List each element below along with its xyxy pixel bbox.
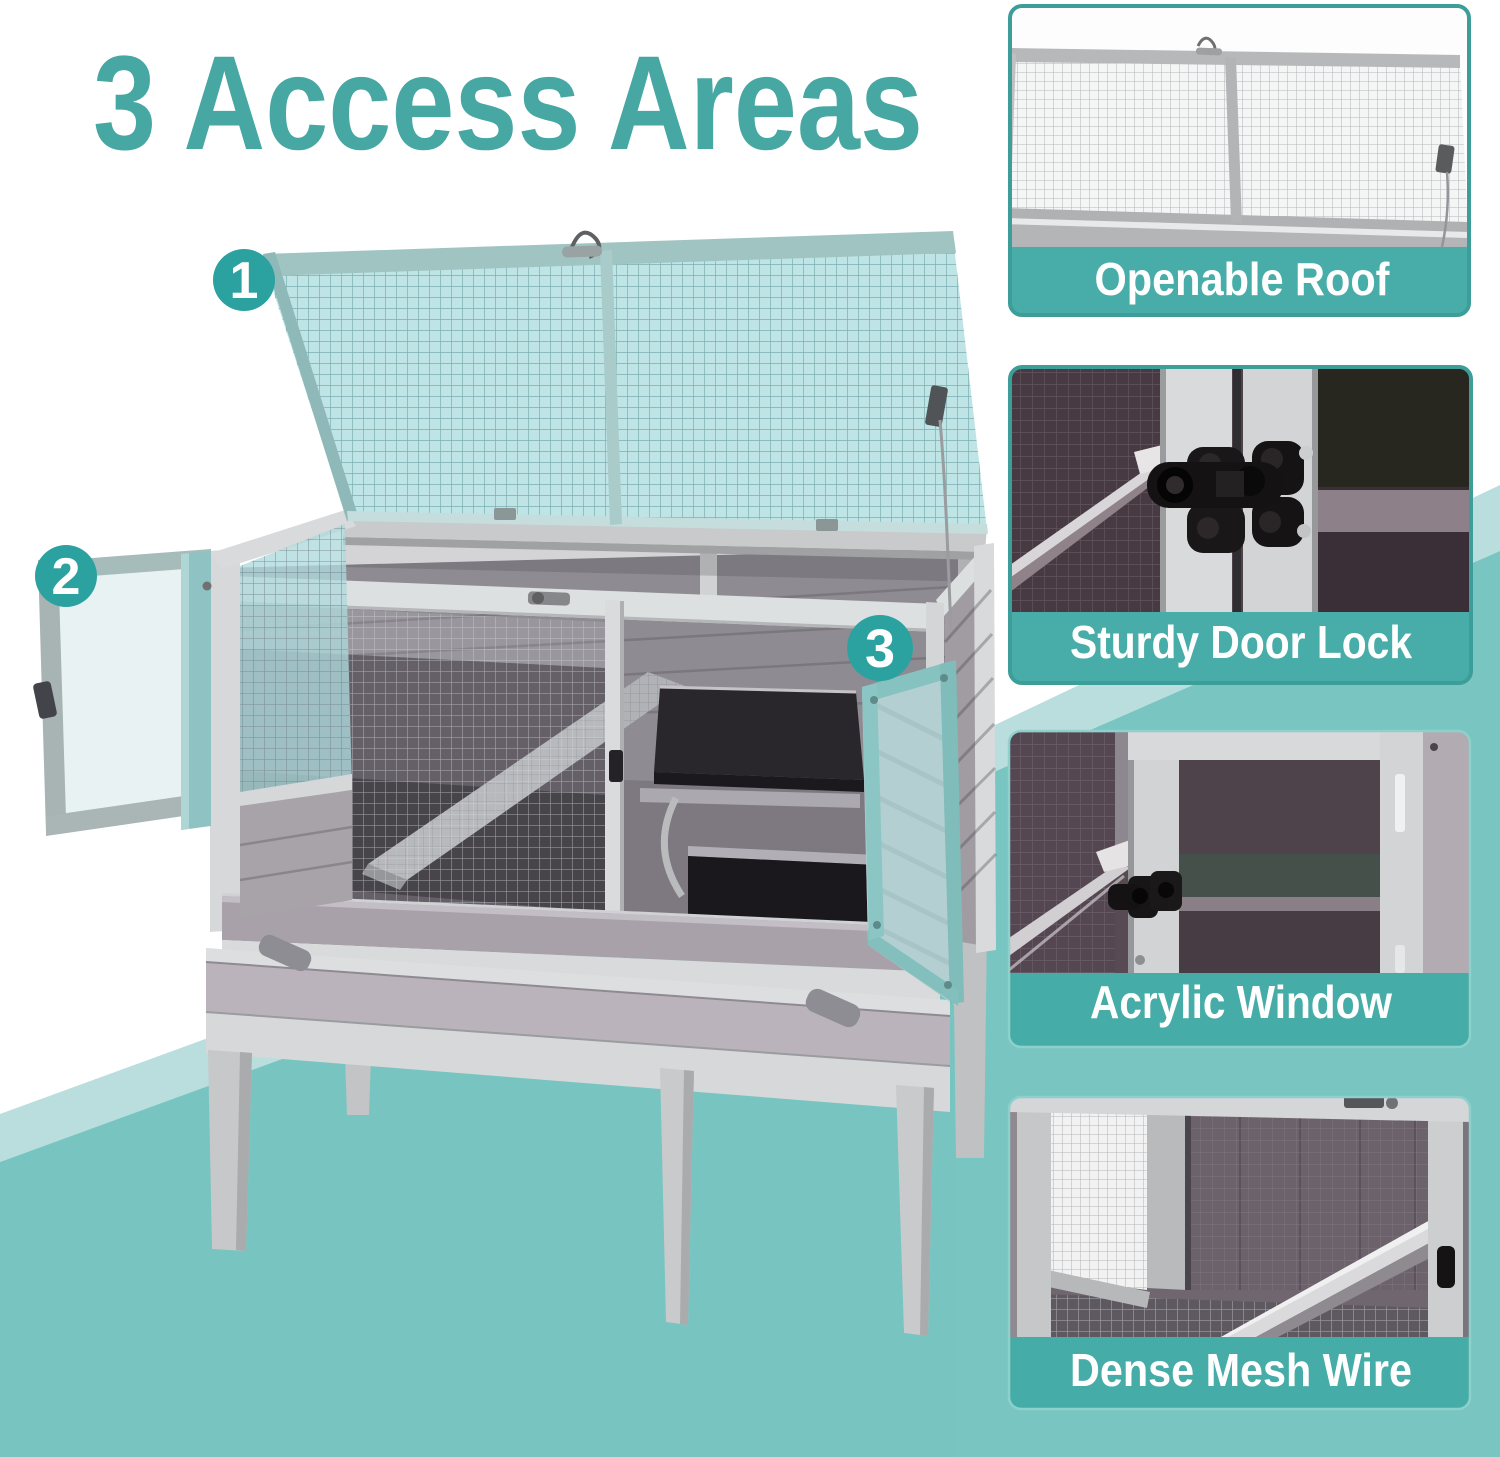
svg-text:Dense Mesh Wire: Dense Mesh Wire xyxy=(1070,1344,1412,1396)
svg-text:1: 1 xyxy=(230,252,259,310)
svg-text:Acrylic Window: Acrylic Window xyxy=(1090,976,1392,1028)
svg-text:3: 3 xyxy=(865,619,895,679)
svg-text:Openable Roof: Openable Roof xyxy=(1095,253,1391,305)
svg-text:3 Access Areas: 3 Access Areas xyxy=(93,29,923,178)
svg-text:Sturdy Door Lock: Sturdy Door Lock xyxy=(1070,616,1412,668)
svg-text:2: 2 xyxy=(52,548,81,606)
